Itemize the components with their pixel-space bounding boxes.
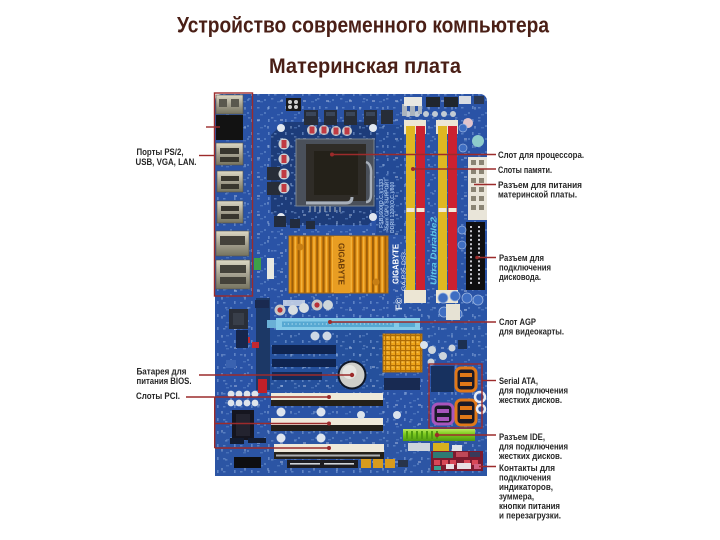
svg-text:Ultra Durable2: Ultra Durable2 (430, 216, 439, 285)
svg-text:дисковода.: дисковода. (499, 272, 541, 283)
svg-text:и перезагрузки.: и перезагрузки. (499, 511, 561, 522)
svg-text:жестких дисков.: жестких дисков. (498, 395, 562, 406)
svg-text:для видеокарты.: для видеокарты. (499, 327, 564, 338)
svg-text:USB, VGA, LAN.: USB, VGA, LAN. (136, 157, 197, 168)
svg-text:питания BIOS.: питания BIOS. (137, 376, 192, 387)
svg-text:GIGABYTE: GIGABYTE (392, 243, 401, 284)
svg-text:жестких дисков.: жестких дисков. (498, 451, 562, 462)
svg-text:материнской платы.: материнской платы. (498, 190, 577, 201)
svg-text:Слот для процессора.: Слот для процессора. (498, 150, 584, 161)
svg-text:Материнская плата: Материнская плата (269, 55, 461, 78)
svg-text:Слоты PCI.: Слоты PCI. (136, 391, 180, 402)
svg-text:Устройство современного компью: Устройство современного компьютера (177, 13, 550, 38)
svg-text:DDRII 1200(O.C.)/800: DDRII 1200(O.C.)/800 (390, 182, 396, 233)
svg-text:GA-P35-DS3: GA-P35-DS3 (402, 252, 408, 291)
svg-text:F©: F© (394, 298, 404, 310)
svg-text:GIGABYTE: GIGABYTE (337, 243, 347, 285)
svg-text:Слоты памяти.: Слоты памяти. (498, 165, 552, 176)
